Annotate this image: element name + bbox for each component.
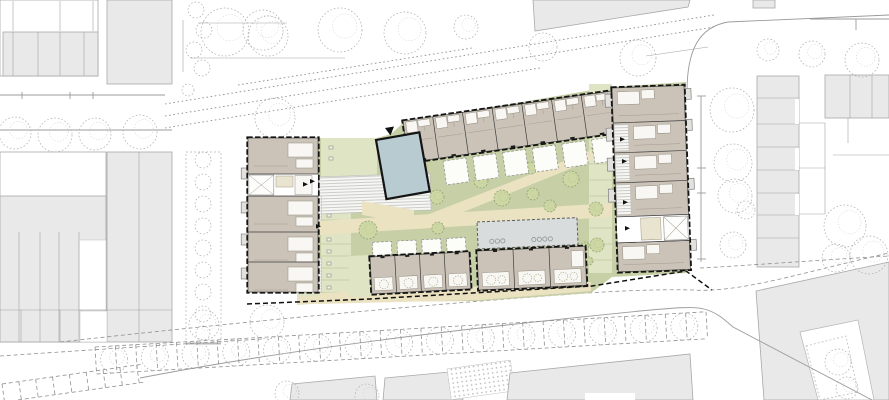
- paved-plaza: [447, 360, 515, 400]
- bush-icon: [195, 196, 211, 212]
- tree-icon: [620, 40, 656, 76]
- tree-icon: [737, 201, 755, 219]
- terrace: [446, 237, 466, 251]
- bush-icon: [195, 174, 211, 190]
- common-building: [376, 132, 430, 199]
- bush-icon: [186, 42, 202, 58]
- tree-icon: [248, 16, 288, 56]
- terrace: [562, 141, 588, 168]
- tree-icon: [757, 39, 779, 61]
- tree-icon: [255, 98, 295, 138]
- context-building: [107, 0, 172, 84]
- terrace: [473, 154, 499, 181]
- bush-icon: [196, 326, 210, 340]
- garden-furniture-icon: [327, 286, 331, 289]
- bush-icon: [196, 22, 212, 38]
- garden-furniture-icon: [327, 274, 331, 277]
- garden-furniture-icon: [327, 238, 331, 241]
- bush-icon: [194, 60, 210, 76]
- context-building: [107, 152, 172, 342]
- context-building: [753, 0, 775, 8]
- hatched-terrace: [616, 184, 631, 214]
- terrace: [422, 239, 442, 253]
- bush-icon: [195, 218, 211, 234]
- tree-icon: [318, 8, 362, 52]
- hatched-terrace: [614, 124, 629, 150]
- tree-icon: [710, 88, 754, 132]
- context-rowhouses: [757, 76, 799, 267]
- tree-icon: [824, 205, 866, 247]
- canopy-bike-shelter: [477, 218, 578, 249]
- tree-icon: [529, 33, 557, 61]
- hedges-and-bushes: [182, 2, 212, 340]
- hedge-strip: [186, 152, 221, 343]
- tree-icon: [384, 12, 426, 54]
- parking-row-corner: [2, 365, 143, 400]
- tree-icon: [454, 15, 478, 39]
- bush-icon: [195, 240, 211, 256]
- garden-furniture-icon: [327, 262, 331, 265]
- tree-icon: [189, 310, 219, 340]
- garden-furniture-icon: [329, 146, 333, 149]
- terrace: [503, 149, 529, 176]
- garden-furniture-icon: [327, 250, 331, 253]
- context-building: [290, 376, 377, 400]
- tree-icon: [79, 118, 111, 150]
- garden-furniture-icon: [329, 157, 333, 160]
- tree-icon: [0, 117, 31, 149]
- site-plan-canvas: [0, 0, 889, 400]
- bush-icon: [195, 262, 211, 278]
- bush-icon: [195, 152, 211, 168]
- context-building: [825, 75, 889, 118]
- hatched-terrace: [615, 154, 630, 180]
- terrace: [372, 241, 392, 255]
- garden-furniture-icon: [327, 214, 331, 217]
- bush-icon: [188, 2, 204, 18]
- context-building: [533, 0, 690, 31]
- bush-icon: [182, 84, 194, 96]
- tree-icon: [822, 244, 850, 272]
- south-row-east: [476, 245, 587, 290]
- site-plan-drawing: [0, 0, 889, 400]
- tree-icon: [714, 144, 752, 182]
- terrace: [532, 145, 558, 172]
- tree-icon: [201, 8, 249, 56]
- terrace: [397, 240, 417, 254]
- bush-icon: [195, 284, 211, 300]
- terrace: [443, 158, 469, 185]
- east-apartment-block: [605, 84, 698, 272]
- west-apartment-block: [241, 137, 319, 293]
